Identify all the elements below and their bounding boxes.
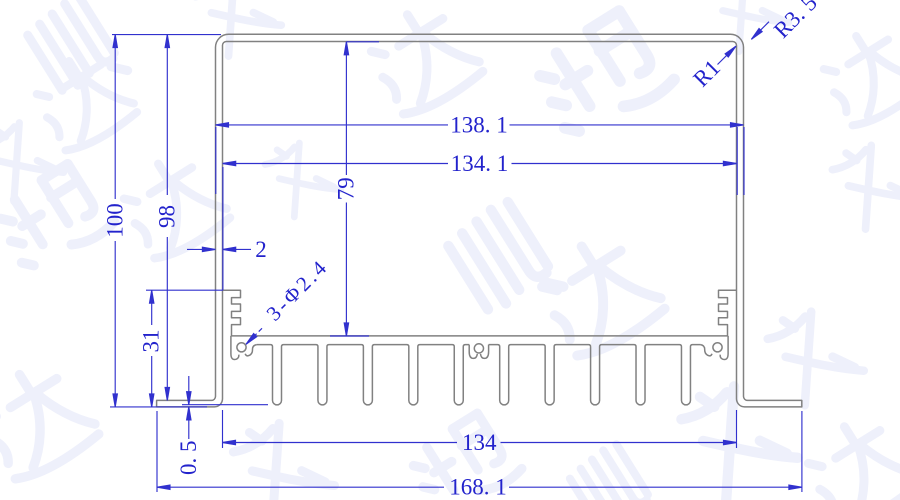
svg-text:31: 31 [138, 330, 163, 353]
svg-text:100: 100 [102, 203, 127, 238]
svg-text:98: 98 [155, 205, 180, 228]
svg-text:168. 1: 168. 1 [449, 475, 507, 500]
svg-text:134. 1: 134. 1 [451, 151, 509, 176]
svg-text:0. 5: 0. 5 [176, 441, 201, 476]
svg-text:79: 79 [333, 177, 358, 200]
svg-text:138. 1: 138. 1 [450, 113, 508, 138]
svg-text:2: 2 [255, 237, 267, 262]
svg-text:134: 134 [462, 430, 497, 455]
